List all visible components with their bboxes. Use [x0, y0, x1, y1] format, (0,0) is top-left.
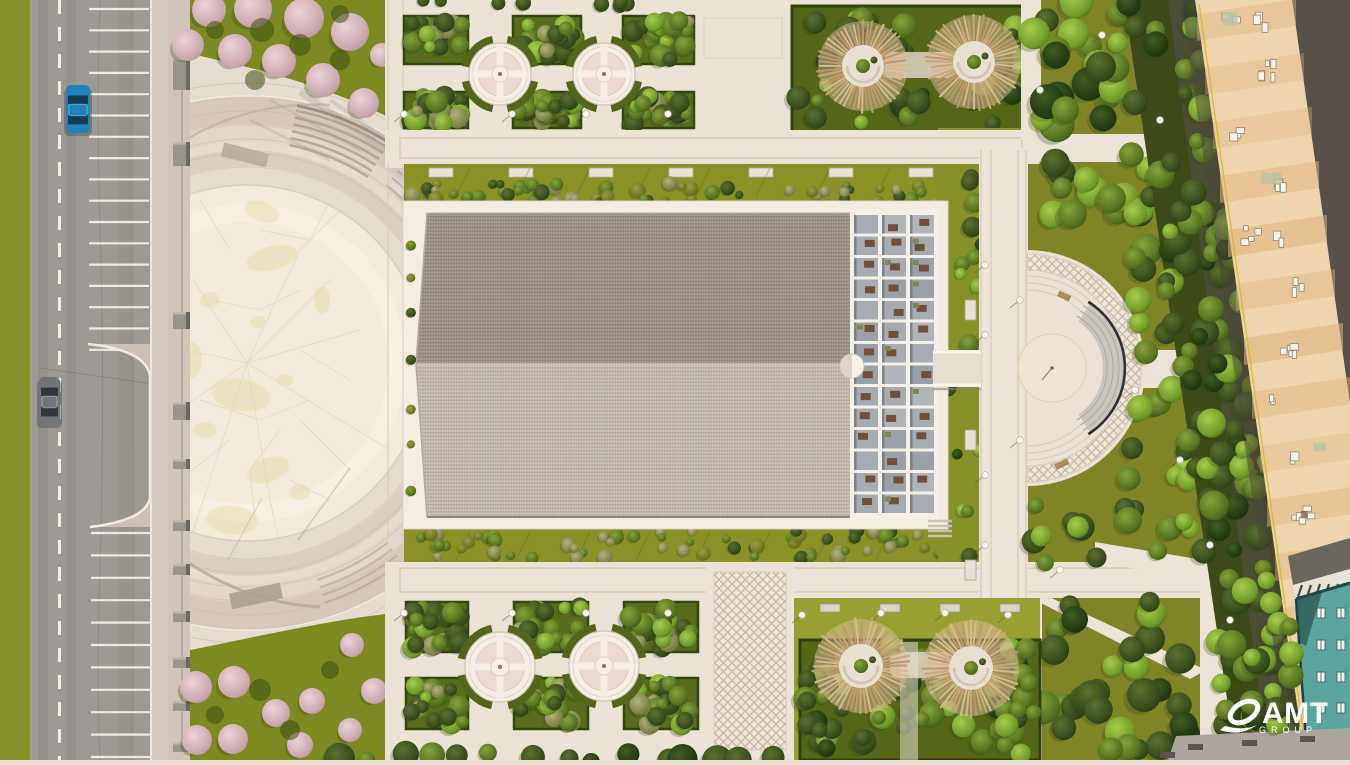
svg-text:GROUP: GROUP [1259, 725, 1317, 735]
